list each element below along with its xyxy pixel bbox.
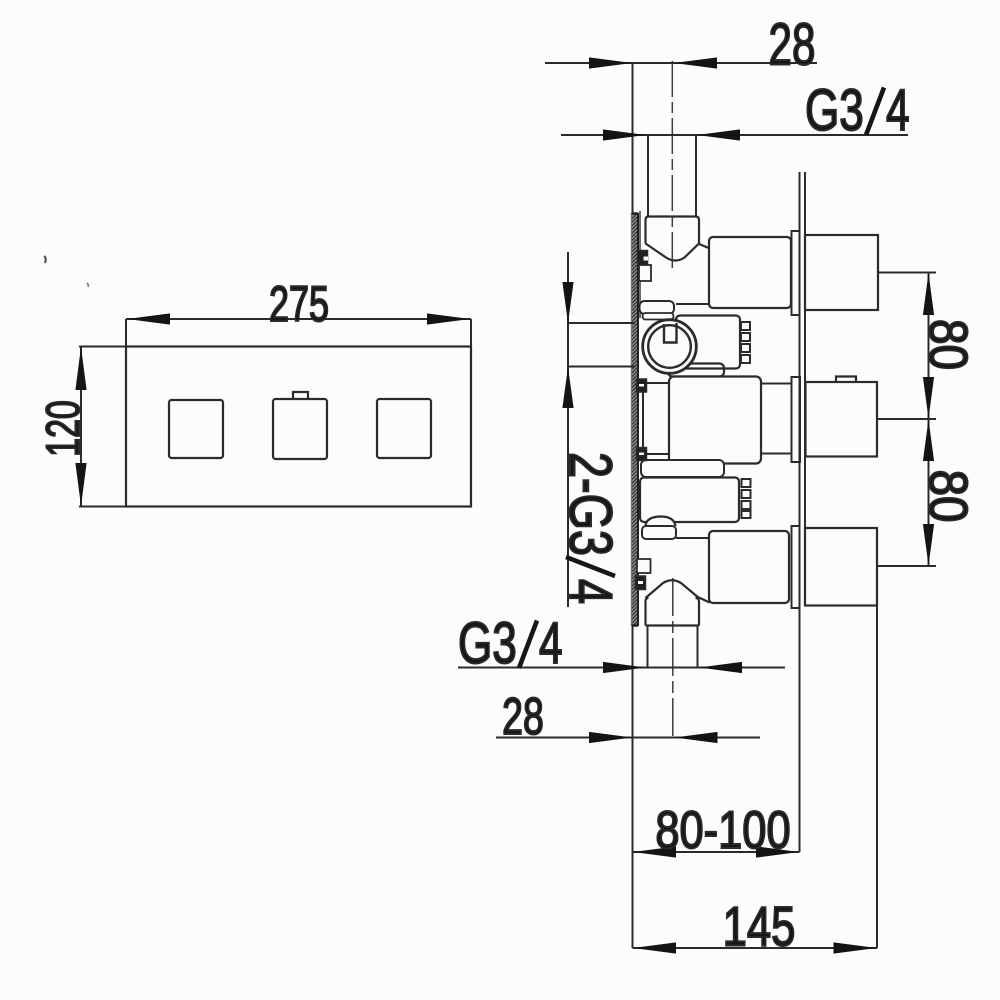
svg-text:4: 4 xyxy=(539,610,563,675)
svg-text:80: 80 xyxy=(918,470,979,523)
svg-text:4: 4 xyxy=(556,579,623,604)
svg-text:120: 120 xyxy=(37,400,90,456)
svg-text:28: 28 xyxy=(502,687,544,746)
svg-text:80-100: 80-100 xyxy=(655,801,790,860)
svg-text:G3: G3 xyxy=(805,77,864,142)
svg-text:4: 4 xyxy=(886,77,910,142)
svg-text:28: 28 xyxy=(769,12,816,78)
svg-text:80: 80 xyxy=(918,319,978,370)
svg-text:2-G3: 2-G3 xyxy=(557,452,624,556)
svg-text:275: 275 xyxy=(269,277,329,332)
svg-text:G3: G3 xyxy=(458,610,517,675)
svg-text:145: 145 xyxy=(723,895,796,957)
